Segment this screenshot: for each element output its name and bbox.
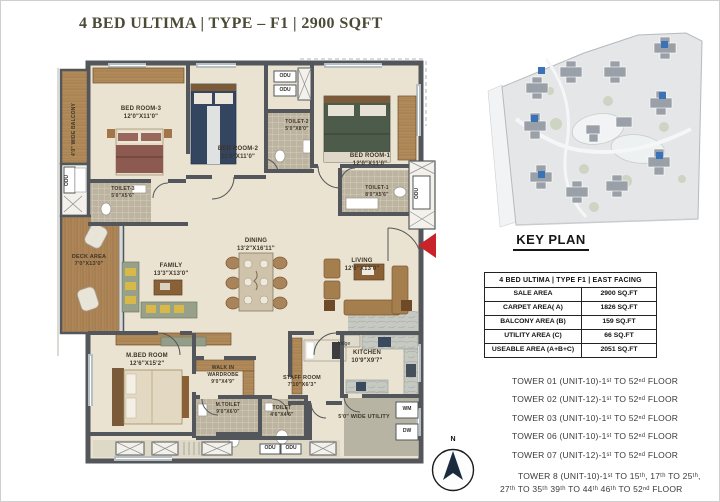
tower-line: TOWER 01 (UNIT-10)-1ˢᵗ TO 52ⁿᵈ FLOOR [512,376,678,386]
room-label-family: FAMILY13'3"X13'0" [136,262,206,278]
tower-line: TOWER 07 (UNIT-12)-1ˢᵗ TO 52ⁿᵈ FLOOR [512,450,678,460]
room-label-toilet2: TOILET-25'0"X8'0" [267,119,327,133]
room-label-wardrobe: WALK IN WARDROBE9'0"X4'9" [197,365,249,385]
compass-icon [425,442,481,498]
area-value: 2051 SQ.FT [582,344,656,357]
odu-label-top-2: ODU [274,88,296,93]
room-label-mbedroom: M.BED ROOM12'6"X15'2" [107,352,187,368]
room-label-toilet1: TOILET-18'0"X5'6" [347,185,407,199]
room-label-staffroom: STAFF ROOM7'10"X6'3" [266,375,338,390]
odu-label-bottom-1: ODU [260,446,280,451]
tower-line: TOWER 02 (UNIT-12)-1ˢᵗ TO 52ⁿᵈ FLOOR [512,394,678,404]
key-plan-map [486,29,716,229]
utility-label: 5'0" WIDE UTILITY [323,414,405,421]
table-row: UTILITY AREA (C) 66 SQ.FT [485,329,656,343]
wm-label: WM [396,407,418,412]
tower-line: TOWER 03 (UNIT-10)-1ˢᵗ TO 52ⁿᵈ FLOOR [512,413,678,423]
tower-line: TOWER 8 (UNIT-10)-1ˢᵗ TO 15ᵗʰ, 17ᵗʰ TO 2… [518,471,701,481]
table-row: SALE AREA 2900 SQ.FT [485,287,656,301]
area-value: 2900 SQ.FT [582,288,656,301]
area-label: SALE AREA [485,288,582,301]
tower-list: TOWER 01 (UNIT-10)-1ˢᵗ TO 52ⁿᵈ FLOOR TOW… [491,366,719,498]
dw-label: DW [396,429,418,434]
room-label-toilet4: TOILET4'6"X4'6" [257,405,307,419]
room-label-bedroom3: BED ROOM-312'0"X11'0" [101,105,181,121]
odu-label-top-1: ODU [274,74,296,79]
odu-label-right: ODU [415,181,420,206]
tower-line: 27ᵗʰ TO 35ᵗʰ 39ᵗʰ TO 44ᵗʰ 46ᵗʰ TO 52ⁿᵈ F… [500,484,683,494]
area-table-header: 4 BED ULTIMA | TYPE F1 | EAST FACING [485,273,656,287]
room-label-bedroom1: BED ROOM-112'0"X11'0" [330,152,410,168]
area-value: 66 SQ.FT [582,330,656,343]
key-plan-heading: KEY PLAN [513,232,589,251]
tower-line: TOWER 06 (UNIT-10)-1ˢᵗ TO 52ⁿᵈ FLOOR [512,431,678,441]
area-label: BALCONY AREA (B) [485,316,582,329]
area-label: UTILITY AREA (C) [485,330,582,343]
room-label-living: LIVING12'6"X13'0" [327,257,397,273]
room-label-toilet3: TOILET-35'0"X5'6" [93,186,153,200]
area-value: 1826 SQ.FT [582,302,656,315]
area-value: 159 SQ.FT [582,316,656,329]
area-label: CARPET AREA( A) [485,302,582,315]
table-row: BALCONY AREA (B) 159 SQ.FT [485,315,656,329]
balcony-label: 4'0" WIDE BALCONY [71,91,78,167]
room-label-bedroom2: BED ROOM-211'0"X11'0" [198,145,278,161]
room-label-mtoilet: M.TOILET9'0"X6'0" [197,402,259,416]
room-label-dining: DINING13'2"X16'11" [216,237,296,253]
room-label-kitchen: KITCHEN10'9"X9'7" [336,349,398,365]
north-label: N [446,436,460,443]
table-row: CARPET AREA( A) 1826 SQ.FT [485,301,656,315]
fridge-label: fridge [332,342,356,347]
odu-label-bottom-2: ODU [281,446,301,451]
area-label: USEABLE AREA (A+B+C) [485,344,582,357]
table-row: USEABLE AREA (A+B+C) 2051 SQ.FT [485,343,656,357]
area-table: 4 BED ULTIMA | TYPE F1 | EAST FACING SAL… [484,272,657,358]
room-label-deck: DECK AREA7'0"X13'0" [61,254,117,269]
page-title: 4 BED ULTIMA | TYPE – F1 | 2900 SQFT [79,15,383,33]
brochure-page: 4 BED ULTIMA | TYPE – F1 | 2900 SQFT [0,0,720,502]
odu-label-left: ODU [65,169,70,191]
